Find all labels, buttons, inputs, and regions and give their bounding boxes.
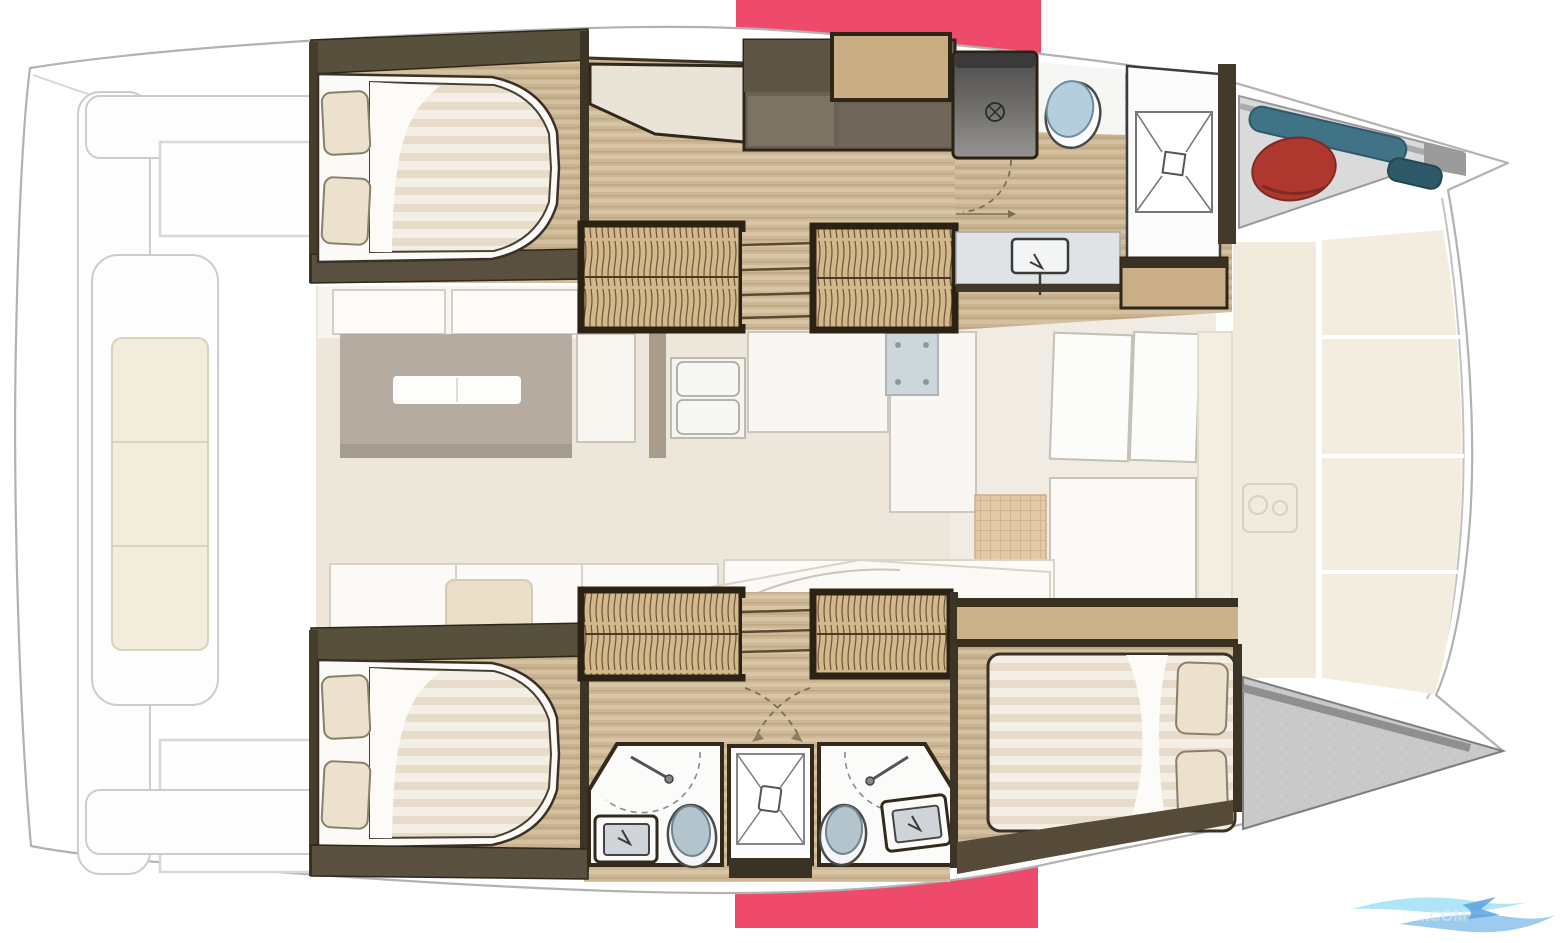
svg-text:...COM: ...COM <box>1416 908 1467 925</box>
